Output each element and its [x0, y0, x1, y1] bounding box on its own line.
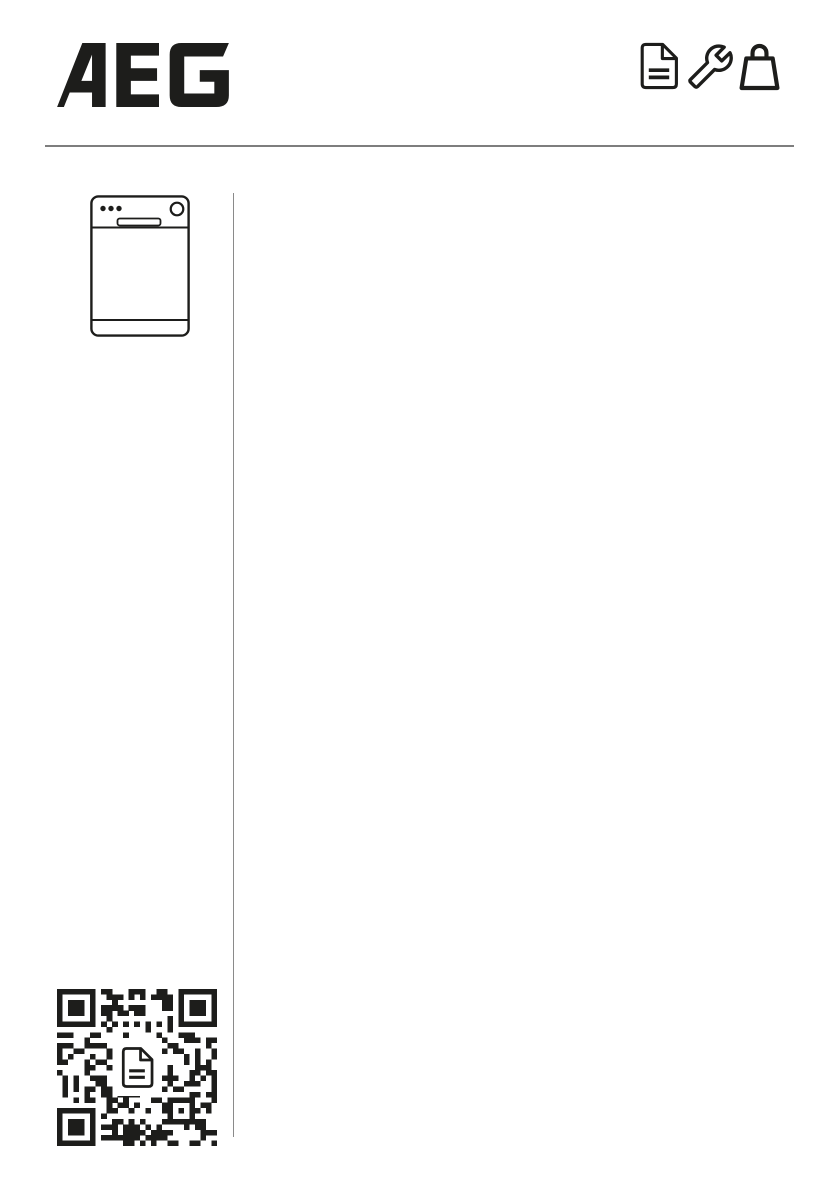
dial-knob	[171, 203, 184, 216]
qr-center-badge	[113, 1039, 161, 1096]
shopping-bag-icon[interactable]	[735, 38, 784, 92]
indicator-dot	[116, 206, 121, 211]
qr-code	[57, 989, 217, 1146]
aeg-logo-glyphs	[55, 42, 230, 108]
door-handle	[118, 219, 161, 226]
dishwasher-icon	[90, 195, 190, 337]
wrench-icon[interactable]	[688, 43, 733, 90]
indicator-dot	[100, 206, 105, 211]
document-icon	[120, 1046, 154, 1089]
indicator-dot	[108, 206, 113, 211]
manual-cover-page	[0, 0, 839, 1191]
document-icon[interactable]	[637, 42, 681, 90]
column-divider	[233, 193, 234, 1137]
aeg-logo	[55, 42, 230, 108]
header-divider	[45, 145, 794, 147]
